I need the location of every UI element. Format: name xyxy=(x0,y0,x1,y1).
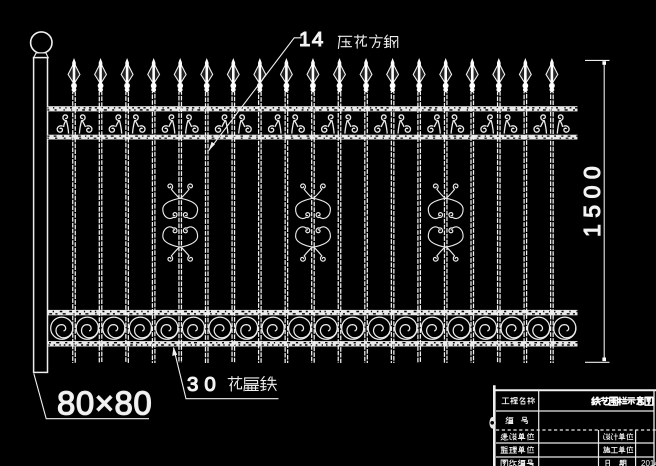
svg-text:80×80: 80×80 xyxy=(57,385,152,422)
svg-text:2014: 2014 xyxy=(641,459,656,466)
svg-text:14: 14 xyxy=(299,28,325,51)
svg-text:1500: 1500 xyxy=(579,160,605,237)
svg-text:30: 30 xyxy=(187,373,222,396)
